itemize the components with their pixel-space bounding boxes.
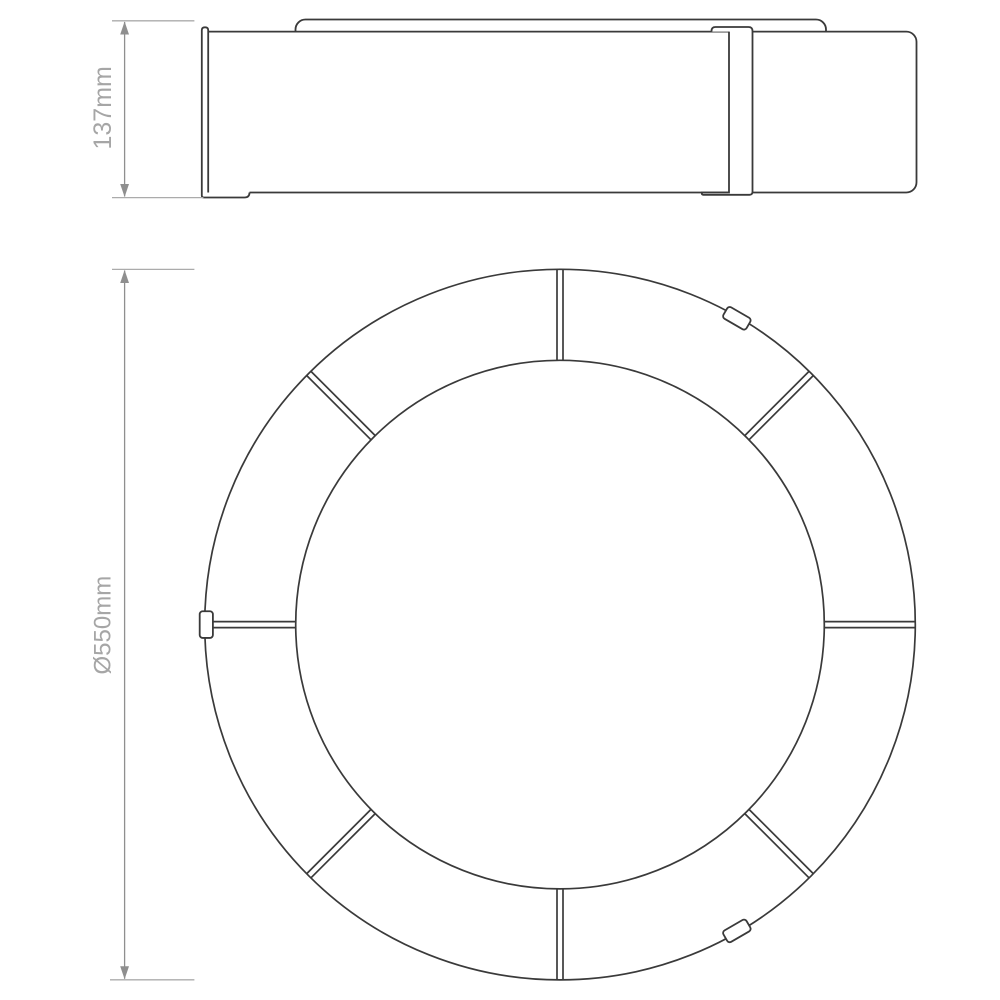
svg-text:Ø550mm: Ø550mm bbox=[90, 576, 117, 675]
svg-text:137mm: 137mm bbox=[89, 66, 117, 149]
